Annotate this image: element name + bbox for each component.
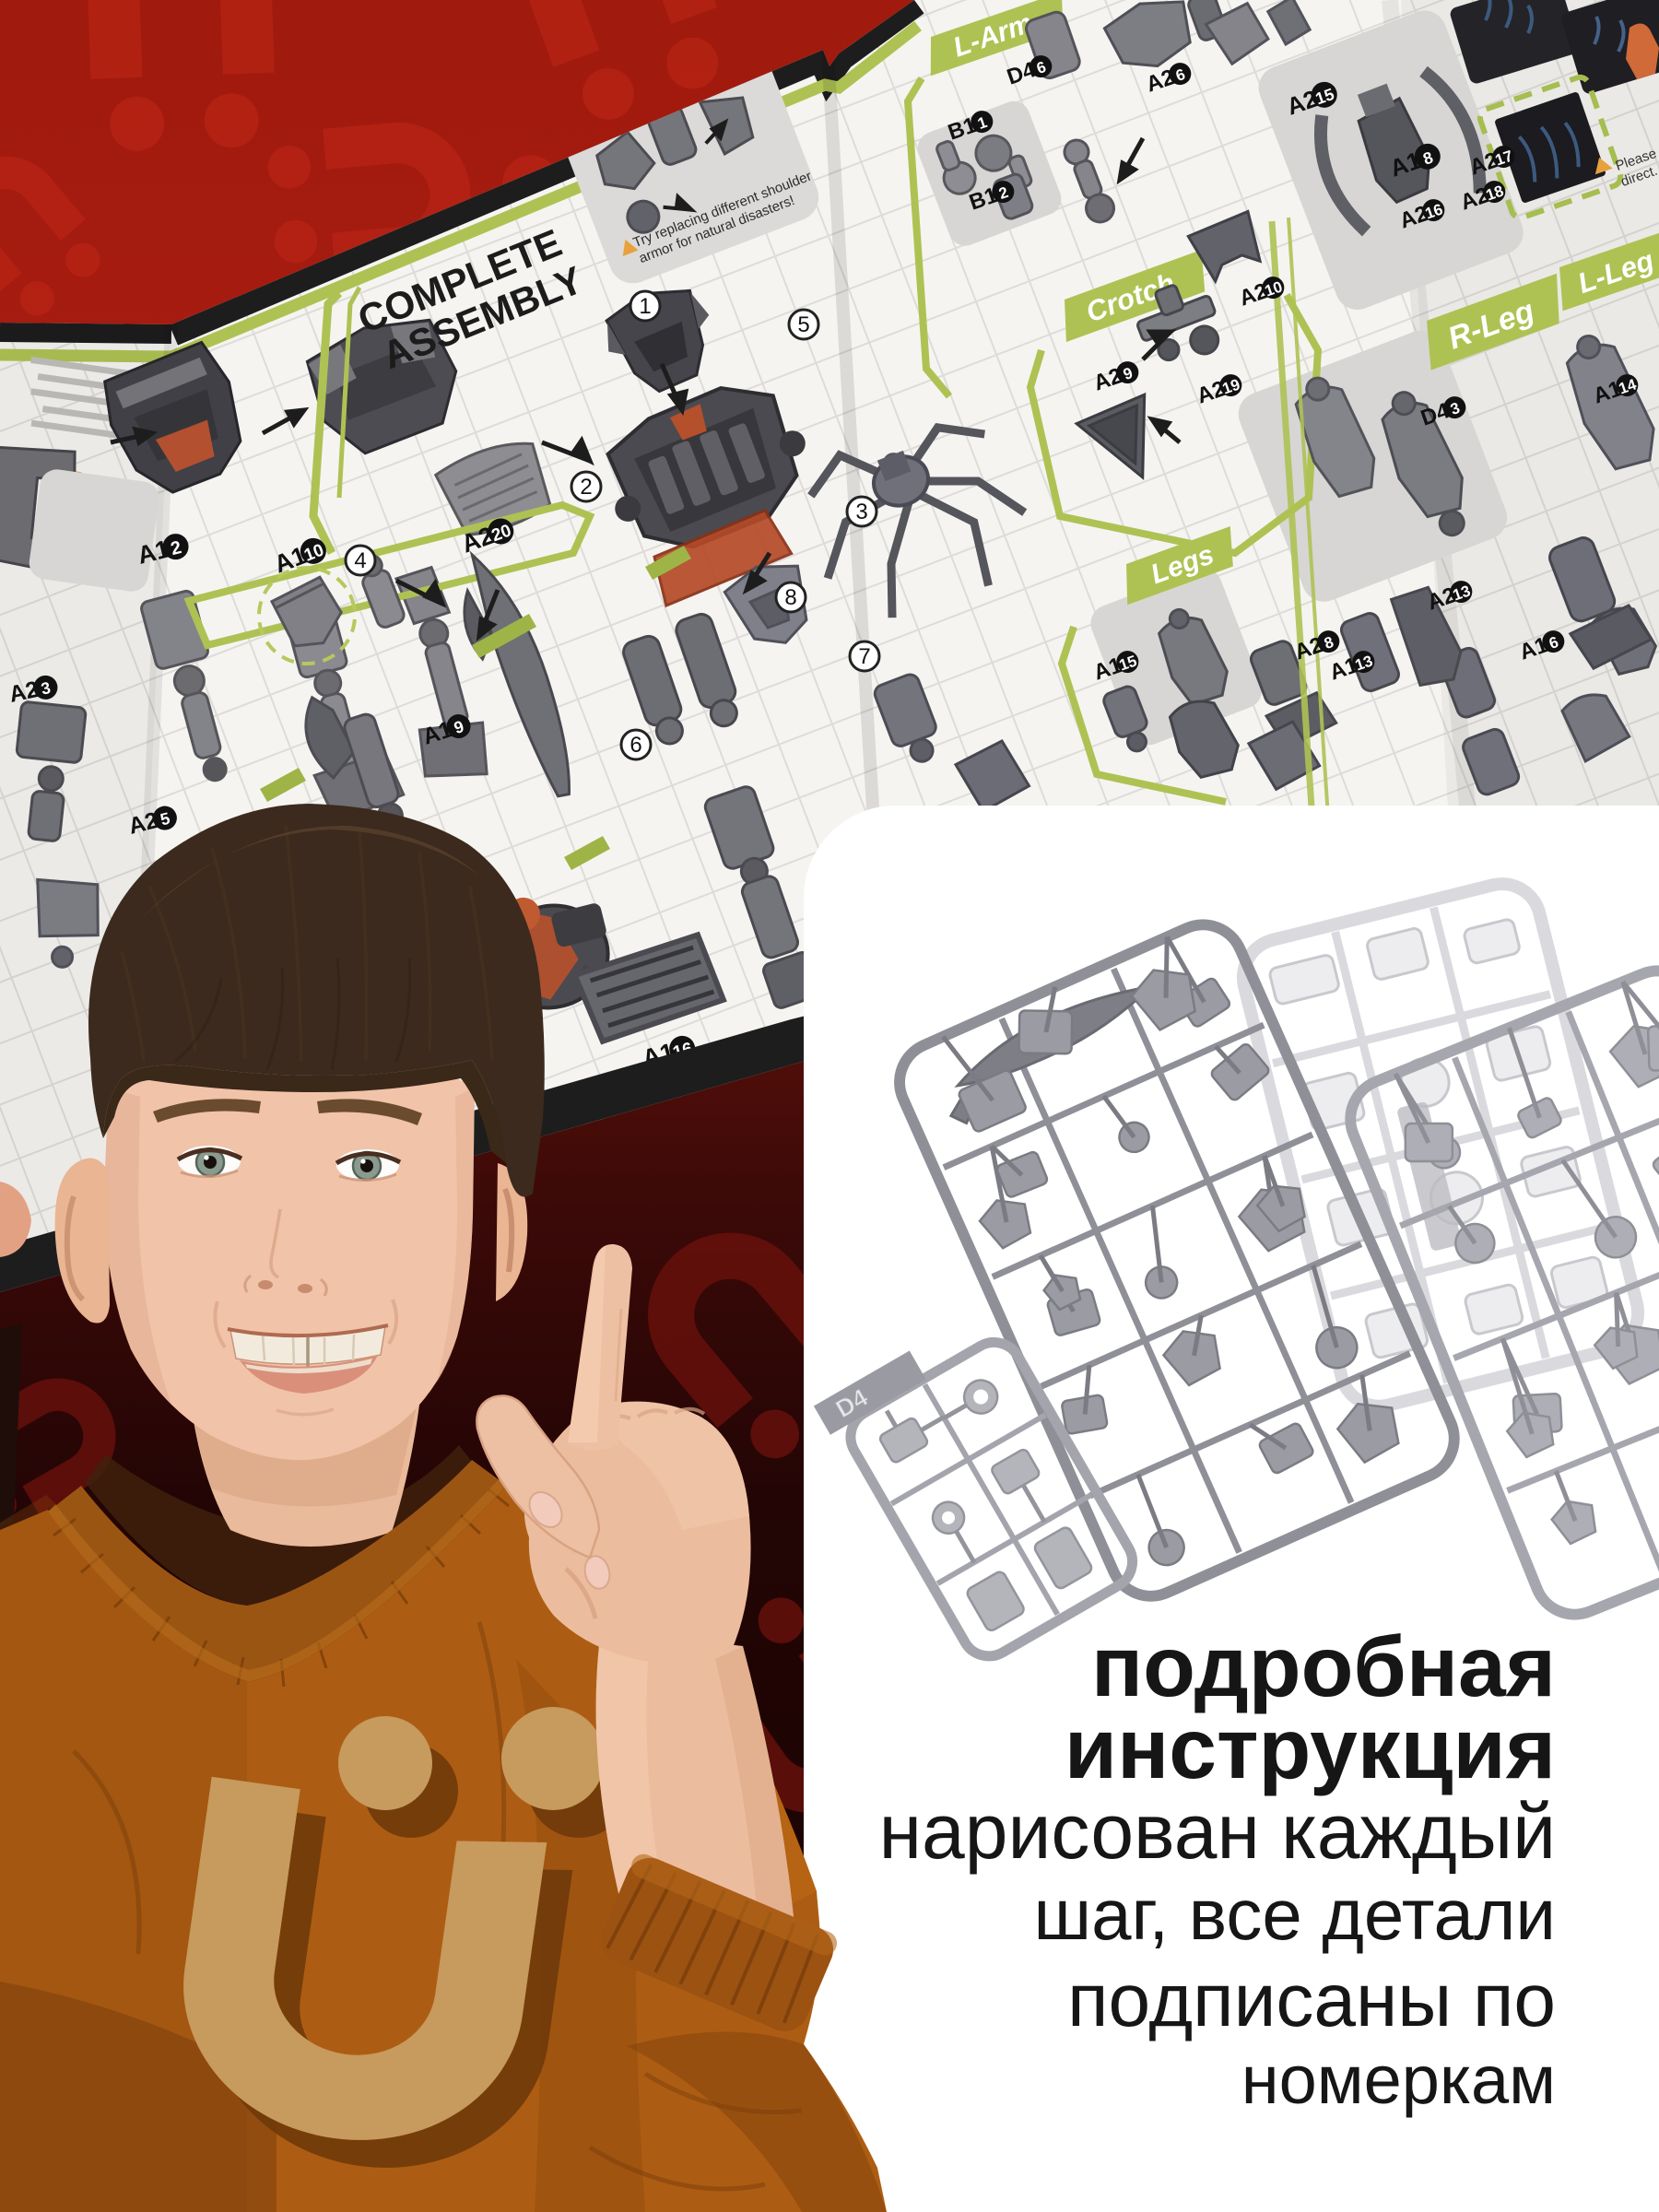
svg-text:4: 4	[354, 548, 366, 573]
svg-text:3: 3	[855, 500, 867, 524]
svg-text:инструкция: инструкция	[1065, 1700, 1556, 1796]
svg-text:5: 5	[797, 312, 809, 337]
svg-text:подписаны по: подписаны по	[1067, 1959, 1556, 2042]
svg-text:номеркам: номеркам	[1241, 2041, 1556, 2118]
svg-text:1: 1	[639, 294, 651, 319]
svg-text:шаг, все детали: шаг, все детали	[1034, 1874, 1556, 1955]
svg-text:нарисован каждый: нарисован каждый	[879, 1788, 1556, 1875]
svg-text:6: 6	[629, 733, 641, 758]
svg-text:2: 2	[580, 475, 592, 500]
svg-text:8: 8	[784, 585, 796, 610]
svg-text:7: 7	[858, 644, 870, 669]
